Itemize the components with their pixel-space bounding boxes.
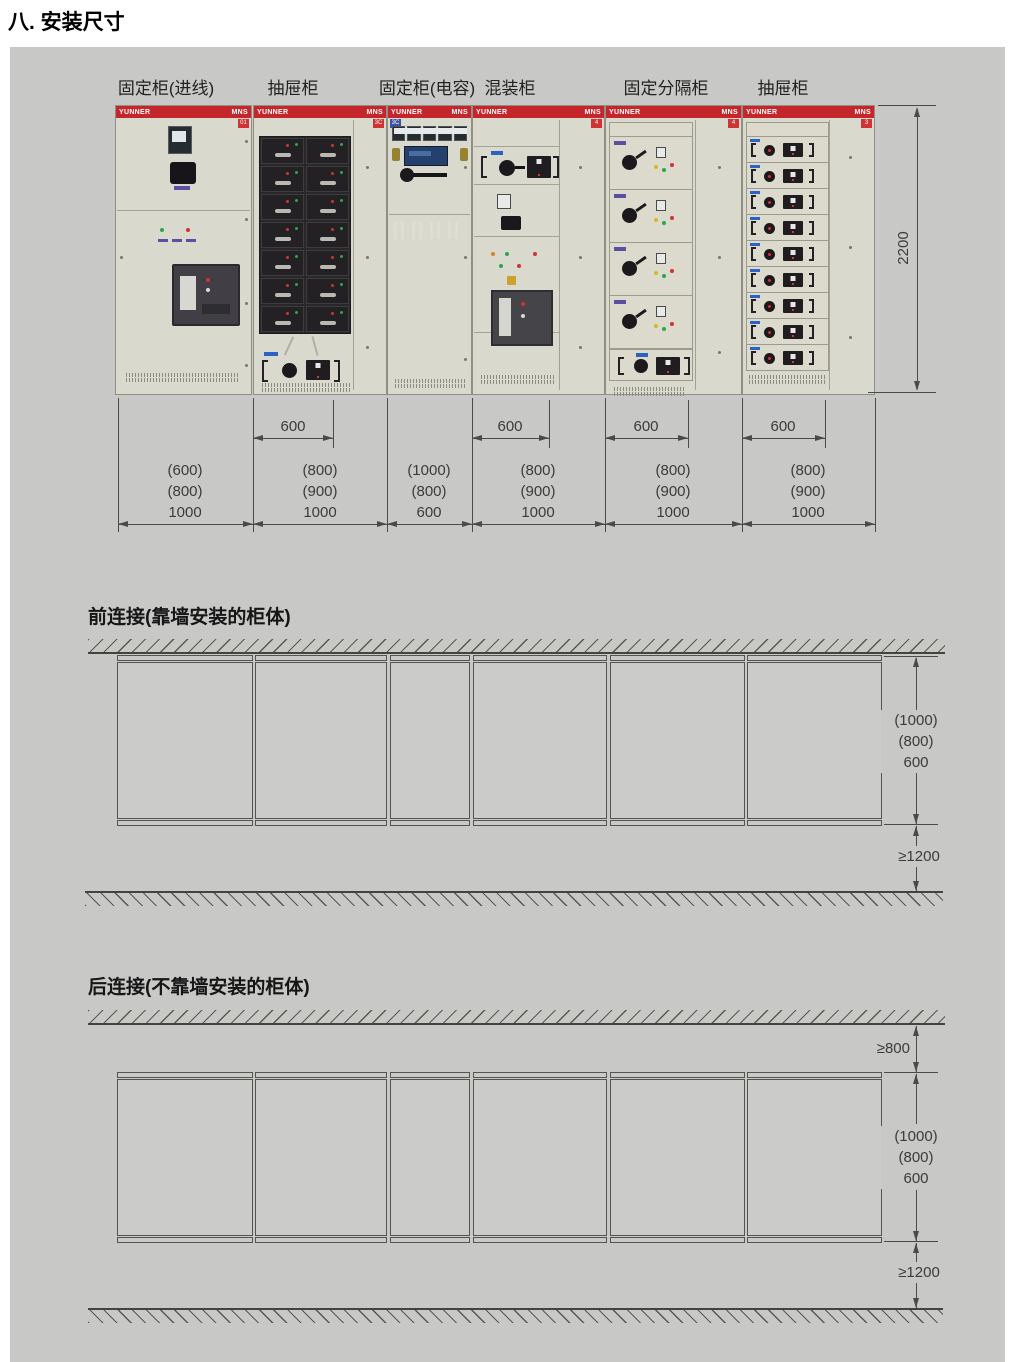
cabinet-frame-strip bbox=[390, 1072, 470, 1078]
dim-label: 1000 bbox=[493, 502, 583, 523]
plan-cabinet bbox=[747, 1072, 882, 1243]
dim-label: (900) bbox=[763, 481, 853, 502]
drawer-bracket bbox=[809, 299, 814, 313]
indicator-light bbox=[533, 252, 537, 256]
bolt-icon bbox=[849, 336, 852, 339]
ext-line bbox=[605, 398, 606, 532]
arrow-down-icon bbox=[913, 814, 919, 824]
label-tag bbox=[614, 141, 626, 145]
arrow-right-icon bbox=[377, 521, 387, 527]
panel-divider bbox=[117, 210, 250, 211]
brand-logo: YUNNER bbox=[257, 109, 288, 116]
label-tag bbox=[186, 239, 196, 242]
label-tag bbox=[158, 239, 168, 242]
arrow-left-icon bbox=[742, 435, 752, 441]
dim-label-600: 600 bbox=[616, 416, 676, 437]
bolt-icon bbox=[849, 156, 852, 159]
drawer-bracket bbox=[751, 273, 756, 287]
drawer-unit bbox=[261, 250, 304, 276]
mns-label: MNS bbox=[722, 109, 738, 116]
label-tag bbox=[750, 347, 760, 350]
cabinet-frame-strip bbox=[610, 820, 745, 826]
partition-compartment bbox=[609, 243, 693, 296]
cabinet-frame-strip bbox=[117, 1072, 253, 1078]
meter-icon bbox=[656, 253, 666, 264]
bolt-icon bbox=[579, 346, 582, 349]
drawer-unit bbox=[261, 166, 304, 192]
catalog-page: 八. 安装尺寸 固定柜(进线) 抽屉柜 固定柜(电容) 混装柜 固定分隔柜 抽屉… bbox=[0, 0, 1015, 1362]
ext-line bbox=[868, 392, 936, 393]
arrow-left-icon bbox=[472, 521, 482, 527]
cabinet-frame-strip bbox=[747, 655, 882, 661]
partition-compartment bbox=[609, 296, 693, 349]
meter-face bbox=[172, 131, 186, 142]
switch-handle-icon bbox=[170, 162, 196, 184]
cabinet-body bbox=[473, 662, 607, 819]
dim-label: (800) bbox=[384, 481, 474, 502]
cabinet-label-fixed-partition: 固定分隔柜 bbox=[596, 74, 736, 99]
drawer-module bbox=[783, 169, 803, 183]
dim-line bbox=[118, 524, 875, 525]
dim-label: (1000) bbox=[881, 710, 951, 731]
plan-cabinet bbox=[117, 655, 253, 826]
dim-label: (800) bbox=[493, 460, 583, 481]
plan-cabinet bbox=[473, 655, 607, 826]
drawer-row bbox=[746, 293, 829, 319]
cabinet-photo-fixed-capacitor: YUNNER MNS 3C bbox=[387, 105, 472, 395]
arrow-down-icon bbox=[913, 1298, 919, 1308]
cabinet-frame-strip bbox=[255, 820, 387, 826]
bolt-icon bbox=[718, 351, 721, 354]
top-compartment bbox=[609, 122, 693, 137]
dim-label: (1000) bbox=[881, 1126, 951, 1147]
panel-divider bbox=[474, 146, 559, 147]
fuse-handle bbox=[392, 148, 400, 161]
dim-label: (900) bbox=[628, 481, 718, 502]
partition-compartments bbox=[609, 137, 693, 349]
drawer-bracket bbox=[751, 325, 756, 339]
breaker-button bbox=[521, 314, 525, 318]
ext-line bbox=[884, 824, 938, 825]
drawer-bracket bbox=[809, 351, 814, 365]
meter-icon bbox=[656, 147, 666, 158]
brand-logo: YUNNER bbox=[746, 109, 777, 116]
rear-connection-title: 后连接(不靠墙安装的柜体) bbox=[88, 972, 310, 999]
unit-badge: 01 bbox=[238, 119, 249, 128]
dim-label: 1000 bbox=[275, 502, 365, 523]
drawer-row bbox=[260, 305, 350, 333]
drawer-unit bbox=[306, 306, 349, 332]
indicator-light bbox=[654, 218, 658, 222]
rotary-handle-icon bbox=[764, 353, 775, 364]
drawer-unit bbox=[306, 166, 349, 192]
cabinet-body bbox=[610, 1079, 745, 1236]
cabinet-frame-strip bbox=[747, 1072, 882, 1078]
drawer-bracket bbox=[809, 169, 814, 183]
drawer-unit bbox=[261, 138, 304, 164]
dim-label-600: 600 bbox=[263, 416, 323, 437]
cabinet-body bbox=[255, 1079, 387, 1236]
ext-line bbox=[875, 398, 876, 532]
drawer-row bbox=[746, 215, 829, 241]
display-panel bbox=[404, 146, 448, 166]
arrow-right-icon bbox=[323, 435, 333, 441]
plan-cabinet bbox=[255, 655, 387, 826]
bolt-icon bbox=[579, 166, 582, 169]
label-tag bbox=[264, 352, 278, 356]
cabinet-frame-strip bbox=[473, 655, 607, 661]
label-tag bbox=[750, 269, 760, 272]
front-depth-dims: (1000) (800) 600 bbox=[881, 710, 951, 773]
drawer-bracket bbox=[618, 357, 624, 375]
arrow-up-icon bbox=[913, 1026, 919, 1036]
cabinet-body bbox=[117, 662, 253, 819]
wall-hatch-top bbox=[88, 1010, 945, 1025]
drawer-row bbox=[260, 193, 350, 221]
rotary-handle-icon bbox=[499, 160, 515, 176]
meter-row bbox=[392, 126, 469, 141]
width-dims-cab5: (800) (900) 1000 bbox=[628, 460, 718, 523]
arrow-right-icon bbox=[595, 521, 605, 527]
label-tag bbox=[614, 300, 626, 304]
key-switch-icon bbox=[507, 276, 516, 285]
panel-divider bbox=[474, 236, 559, 237]
cabinet-frame-strip bbox=[117, 820, 253, 826]
drawer-rows bbox=[746, 137, 829, 371]
top-compartment bbox=[746, 122, 829, 137]
breaker-button bbox=[521, 302, 525, 306]
ext-line bbox=[742, 398, 743, 532]
drawer-module bbox=[306, 360, 330, 380]
drawer-rows bbox=[260, 137, 350, 333]
rear-depth-dims: (1000) (800) 600 bbox=[881, 1126, 951, 1189]
drawer-module bbox=[783, 273, 803, 287]
unit-badge: 3 bbox=[861, 119, 872, 128]
cabinet-frame-strip bbox=[747, 1237, 882, 1243]
fuse-icon bbox=[448, 222, 458, 239]
mns-label: MNS bbox=[232, 109, 248, 116]
switch-lever bbox=[635, 203, 647, 212]
drawer-row bbox=[746, 137, 829, 163]
cabinet-label-drawer-1: 抽屉柜 bbox=[233, 74, 353, 99]
ext-line bbox=[878, 105, 936, 106]
width-dims-cab3: (1000) (800) 600 bbox=[384, 460, 474, 523]
mns-label: MNS bbox=[855, 109, 871, 116]
cabinet-header: YUNNER MNS bbox=[606, 106, 741, 118]
ext-line bbox=[333, 400, 334, 448]
cabinet-photo-drawer-2: YUNNER MNS 3 bbox=[742, 105, 875, 395]
mns-label: MNS bbox=[367, 109, 383, 116]
arrow-right-icon bbox=[865, 521, 875, 527]
panel-divider bbox=[389, 214, 470, 215]
ext-line bbox=[253, 398, 254, 532]
cabinet-frame-strip bbox=[747, 820, 882, 826]
fuse-icon bbox=[394, 222, 404, 239]
fuse-handle bbox=[460, 148, 468, 161]
partition-compartment bbox=[609, 137, 693, 190]
arrow-left-icon bbox=[253, 435, 263, 441]
ext-line bbox=[688, 400, 689, 448]
arrow-up-icon bbox=[913, 657, 919, 667]
dim-label: 600 bbox=[881, 752, 951, 773]
meter-icon bbox=[656, 200, 666, 211]
ext-line bbox=[825, 400, 826, 448]
arrow-down-icon bbox=[913, 881, 919, 891]
dim-label: (800) bbox=[881, 731, 951, 752]
drawer-module bbox=[783, 195, 803, 209]
arrow-up-icon bbox=[913, 826, 919, 836]
drawer-module bbox=[783, 299, 803, 313]
plan-cabinet bbox=[610, 1072, 745, 1243]
cable-compartment-divider bbox=[695, 120, 696, 390]
cabinet-header: YUNNER MNS bbox=[116, 106, 251, 118]
brand-logo: YUNNER bbox=[119, 109, 150, 116]
dim-label: 1000 bbox=[628, 502, 718, 523]
bolt-icon bbox=[718, 256, 721, 259]
label-tag bbox=[750, 139, 760, 142]
rotary-handle-icon bbox=[764, 249, 775, 260]
breaker-button bbox=[206, 278, 210, 282]
cabinet-frame-strip bbox=[610, 655, 745, 661]
bolt-icon bbox=[366, 166, 369, 169]
drawer-bracket bbox=[809, 221, 814, 235]
drawer-bracket bbox=[751, 143, 756, 157]
label-tag bbox=[614, 247, 626, 251]
arrow-right-icon bbox=[732, 521, 742, 527]
cabinet-header: YUNNER MNS bbox=[743, 106, 874, 118]
rotary-handle-icon bbox=[400, 168, 414, 182]
bolt-icon bbox=[579, 256, 582, 259]
cable-compartment-divider bbox=[559, 120, 560, 390]
drawer-row bbox=[746, 345, 829, 371]
unit-badge: 4 bbox=[591, 119, 602, 128]
arrow-down-icon bbox=[914, 381, 920, 391]
plan-cabinet bbox=[255, 1072, 387, 1243]
plan-cabinet bbox=[747, 655, 882, 826]
drawer-bracket bbox=[751, 195, 756, 209]
cabinet-frame-strip bbox=[390, 1237, 470, 1243]
switch-lever bbox=[635, 309, 647, 318]
partition-compartment bbox=[609, 190, 693, 243]
wall-hatch-top bbox=[88, 639, 945, 654]
label-tag bbox=[750, 217, 760, 220]
arrow-down-icon bbox=[913, 1062, 919, 1072]
air-circuit-breaker bbox=[172, 264, 240, 326]
cabinet-label-fixed-incoming: 固定柜(进线) bbox=[96, 74, 236, 99]
cabinet-photo-fixed-partition: YUNNER MNS 4 bbox=[605, 105, 742, 395]
switch-lever bbox=[635, 150, 647, 159]
arrow-left-icon bbox=[387, 521, 397, 527]
ext-line bbox=[118, 398, 119, 532]
plan-cabinet bbox=[473, 1072, 607, 1243]
bolt-icon bbox=[464, 166, 467, 169]
drawer-bracket bbox=[751, 221, 756, 235]
dim-label: (800) bbox=[763, 460, 853, 481]
plan-cabinet bbox=[390, 655, 470, 826]
drawer-row bbox=[260, 221, 350, 249]
vent-grille bbox=[749, 374, 825, 386]
dim-line bbox=[253, 438, 333, 439]
unit-badge: 4 bbox=[728, 119, 739, 128]
breaker-strip bbox=[202, 304, 230, 314]
drawer-bracket bbox=[262, 360, 268, 382]
cabinet-label-mixed: 混装柜 bbox=[450, 74, 570, 99]
switch-lever bbox=[515, 166, 525, 169]
indicator-light bbox=[505, 252, 509, 256]
indicator-light bbox=[662, 274, 666, 278]
drawer-row bbox=[260, 249, 350, 277]
breaker-window bbox=[499, 298, 511, 336]
brand-logo: YUNNER bbox=[391, 109, 422, 116]
ground-hatch-bottom bbox=[85, 891, 943, 906]
indicator-light bbox=[519, 252, 523, 256]
breaker-window bbox=[180, 276, 196, 310]
bolt-icon bbox=[366, 256, 369, 259]
page-title: 八. 安装尺寸 bbox=[8, 6, 125, 36]
cabinet-frame-strip bbox=[390, 820, 470, 826]
drawer-bracket bbox=[809, 273, 814, 287]
ext-line bbox=[884, 656, 938, 657]
label-tag bbox=[636, 353, 648, 357]
dim-line bbox=[742, 438, 825, 439]
cable-icon bbox=[284, 337, 294, 356]
mns-label: MNS bbox=[585, 109, 601, 116]
drawer-module bbox=[527, 156, 551, 178]
cabinet-frame-strip bbox=[610, 1237, 745, 1243]
cabinet-frame-strip bbox=[255, 1072, 387, 1078]
arrow-left-icon bbox=[605, 435, 615, 441]
label-tag bbox=[750, 243, 760, 246]
dim-line bbox=[605, 438, 688, 439]
drawer-unit bbox=[261, 194, 304, 220]
bolt-icon bbox=[366, 346, 369, 349]
rotary-handle-icon bbox=[282, 363, 297, 378]
switch-lever bbox=[413, 173, 447, 177]
ext-line bbox=[884, 1072, 938, 1073]
cabinet-header: YUNNER MNS bbox=[254, 106, 386, 118]
vent-grille bbox=[614, 386, 686, 398]
rear-wall-gap-dim: ≥800 bbox=[838, 1038, 910, 1059]
indicator-light bbox=[670, 216, 674, 220]
rotary-handle-icon bbox=[764, 301, 775, 312]
fuse-icon bbox=[430, 222, 440, 239]
drawer-module bbox=[656, 357, 680, 375]
meter-icon bbox=[454, 126, 467, 141]
drawer-unit bbox=[306, 278, 349, 304]
ext-line bbox=[884, 1241, 938, 1242]
drawer-unit bbox=[306, 250, 349, 276]
drawer-bracket bbox=[751, 169, 756, 183]
bolt-icon bbox=[464, 256, 467, 259]
cable-compartment-divider bbox=[829, 120, 830, 390]
drawer-bracket bbox=[684, 357, 690, 375]
arrow-right-icon bbox=[815, 435, 825, 441]
unit-badge: 3C bbox=[373, 119, 384, 128]
indicator-light bbox=[173, 226, 178, 231]
dim-label-height: 2200 bbox=[894, 216, 914, 280]
arrow-right-icon bbox=[462, 521, 472, 527]
indicator-light bbox=[662, 221, 666, 225]
dim-label: (1000) bbox=[384, 460, 474, 481]
drawer-row bbox=[746, 241, 829, 267]
indicator-light bbox=[186, 228, 190, 232]
indicator-light bbox=[491, 252, 495, 256]
indicator-light bbox=[160, 228, 164, 232]
plan-cabinet bbox=[117, 1072, 253, 1243]
front-aisle-dim: ≥1200 bbox=[884, 846, 954, 867]
drawer-stack bbox=[259, 136, 351, 334]
arrow-right-icon bbox=[243, 521, 253, 527]
ext-line bbox=[549, 400, 550, 448]
drawer-row bbox=[746, 163, 829, 189]
rotary-handle-icon bbox=[764, 275, 775, 286]
meter-icon bbox=[656, 306, 666, 317]
arrow-right-icon bbox=[539, 435, 549, 441]
cabinet-body bbox=[747, 1079, 882, 1236]
indicator-light bbox=[662, 168, 666, 172]
dim-label: (800) bbox=[881, 1147, 951, 1168]
switch-handle-icon bbox=[501, 216, 521, 230]
switch-lever bbox=[635, 256, 647, 265]
cabinet-header: YUNNER MNS bbox=[388, 106, 471, 118]
dim-label: (600) bbox=[140, 460, 230, 481]
brand-logo: YUNNER bbox=[609, 109, 640, 116]
rotary-handle-icon bbox=[634, 359, 648, 373]
rotary-handle-icon bbox=[764, 145, 775, 156]
cabinet-photo-mixed: YUNNER MNS 4 bbox=[472, 105, 605, 395]
drawer-unit bbox=[306, 222, 349, 248]
drawer-row bbox=[746, 267, 829, 293]
mns-label: MNS bbox=[452, 109, 468, 116]
drawer-unit bbox=[261, 306, 304, 332]
arrow-left-icon bbox=[742, 521, 752, 527]
indicator-light bbox=[654, 324, 658, 328]
arrow-down-icon bbox=[913, 1231, 919, 1241]
drawer-row bbox=[260, 277, 350, 305]
drawer-module bbox=[783, 143, 803, 157]
panel-divider bbox=[474, 184, 559, 185]
arrow-left-icon bbox=[605, 521, 615, 527]
dim-label: 1000 bbox=[140, 502, 230, 523]
meter-icon bbox=[497, 194, 511, 209]
cabinet-frame-strip bbox=[610, 1072, 745, 1078]
dim-label: (800) bbox=[628, 460, 718, 481]
cabinet-body bbox=[390, 1079, 470, 1236]
drawer-bracket bbox=[809, 247, 814, 261]
fuse-row bbox=[394, 222, 468, 239]
cable-compartment-divider bbox=[353, 120, 354, 390]
dim-label: 1000 bbox=[763, 502, 853, 523]
rotary-handle-icon bbox=[764, 223, 775, 234]
bolt-icon bbox=[464, 358, 467, 361]
cabinet-frame-strip bbox=[473, 1072, 607, 1078]
rotary-handle-icon bbox=[764, 327, 775, 338]
bolt-icon bbox=[245, 302, 248, 305]
drawer-bracket bbox=[809, 325, 814, 339]
width-dims-cab4: (800) (900) 1000 bbox=[493, 460, 583, 523]
plan-cabinet bbox=[610, 655, 745, 826]
indicator-light bbox=[670, 269, 674, 273]
drawer-module bbox=[783, 351, 803, 365]
arrow-up-icon bbox=[913, 1243, 919, 1253]
indicator-light bbox=[654, 165, 658, 169]
breaker-panel bbox=[491, 290, 553, 346]
drawer-bracket bbox=[334, 360, 340, 382]
cabinet-header: YUNNER MNS bbox=[473, 106, 604, 118]
indicator-light bbox=[662, 327, 666, 331]
rotary-handle-icon bbox=[764, 197, 775, 208]
bolt-icon bbox=[718, 166, 721, 169]
